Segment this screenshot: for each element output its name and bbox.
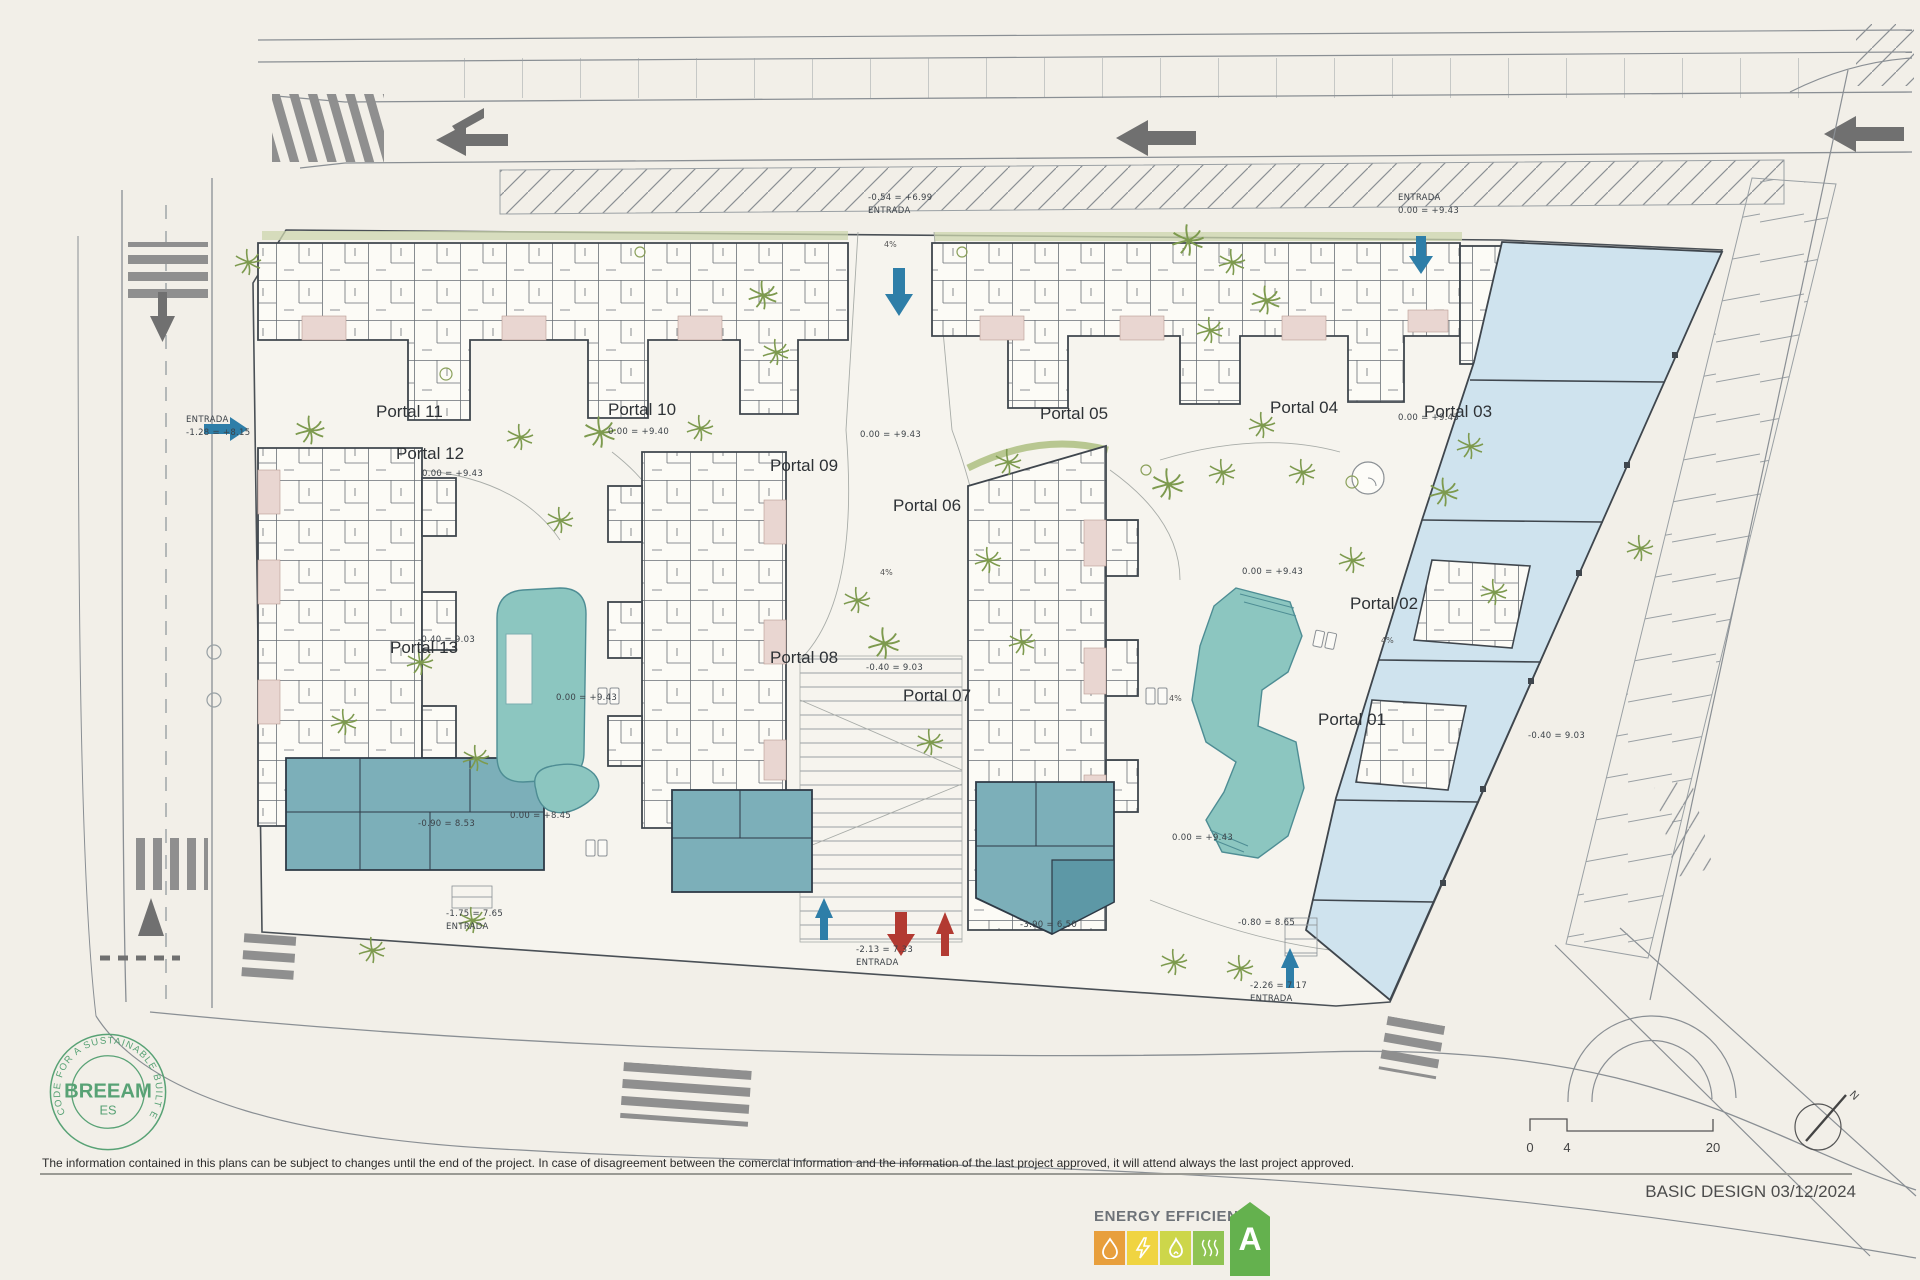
- north-arrow: N: [1795, 1089, 1861, 1150]
- crosswalk-top-left: [272, 94, 384, 162]
- flame-icon: [1160, 1231, 1191, 1265]
- portal-07-label: Portal 07: [903, 686, 971, 706]
- portal-04-label: Portal 04: [1270, 398, 1338, 418]
- site-plan-drawing: 0 4 20 N: [0, 0, 1920, 1280]
- slope-label: 4%: [880, 568, 893, 577]
- entrance-annotation: ENTRADA0.00 = +9.43: [1398, 192, 1459, 218]
- entrance-annotation: ENTRADA-1.28 = +8.15: [186, 414, 250, 440]
- portal-12-label: Portal 12: [396, 444, 464, 464]
- portal-11-label: Portal 11: [376, 402, 443, 422]
- parking-strip-hatched: [500, 160, 1784, 214]
- level-annotation: -3.90 = 6.50: [1020, 919, 1077, 932]
- level-annotation: 0.00 = +9.40: [608, 426, 669, 439]
- energy-efficiency-badge: ENERGY EFFICIENCY A: [1094, 1208, 1274, 1278]
- corner-hatch: [1856, 24, 1914, 86]
- breeam-region: ES: [99, 1102, 116, 1117]
- north-label: N: [1847, 1089, 1861, 1103]
- scale-bar: 0 4 20: [1526, 1119, 1720, 1155]
- lightning-icon: [1127, 1231, 1158, 1265]
- level-annotation: -0.40 = 9.03: [418, 634, 475, 647]
- breeam-badge: CODE FOR A SUSTAINABLE BUILT ENVIRONMENT…: [28, 1012, 188, 1172]
- disclaimer-text: The information contained in this plans …: [42, 1156, 1542, 1170]
- street-parking-ticks: [430, 58, 1830, 98]
- level-annotation: 0.00 = +8.45: [510, 810, 571, 823]
- footer-divider: [40, 1173, 1852, 1175]
- entrance-annotation: -0.54 = +6.99ENTRADA: [868, 192, 932, 218]
- lane-arrow-left: [1824, 116, 1904, 152]
- scale-label-20: 20: [1706, 1140, 1720, 1155]
- level-annotation: 0.00 = +9.43: [556, 692, 617, 705]
- level-annotation: 0.00 = +9.43: [1242, 566, 1303, 579]
- energy-rating-arrow: A: [1230, 1202, 1270, 1276]
- design-stamp: BASIC DESIGN 03/12/2024: [1520, 1182, 1856, 1202]
- pool-platform: [506, 634, 532, 704]
- breeam-ring-text: CODE FOR A SUSTAINABLE BUILT ENVIRONMENT: [28, 1012, 164, 1121]
- scale-label-4: 4: [1563, 1140, 1570, 1155]
- lane-fork-arrow: [436, 108, 508, 156]
- lane-arrow-up: [138, 898, 164, 936]
- level-annotation: 0.00 = +9.43: [1172, 832, 1233, 845]
- level-annotation: -0.90 = 8.53: [418, 818, 475, 831]
- left-road: [78, 178, 212, 1016]
- heat-waves-icon: [1193, 1231, 1224, 1265]
- level-annotation: -0.80 = 8.65: [1238, 917, 1295, 930]
- level-annotation: -0.40 = 9.03: [1528, 730, 1585, 743]
- portal-02-label: Portal 02: [1350, 594, 1418, 614]
- portal-09-label: Portal 09: [770, 456, 838, 476]
- svg-text:CODE FOR A SUSTAINABLE BUILT E: CODE FOR A SUSTAINABLE BUILT ENVIRONMENT: [28, 1012, 164, 1121]
- lane-arrow-left: [1116, 120, 1196, 156]
- stairs: [452, 886, 492, 908]
- level-annotation: 0.00 = +9.43: [1398, 412, 1459, 425]
- scale-label-0: 0: [1526, 1140, 1533, 1155]
- portal-01-label: Portal 01: [1318, 710, 1386, 730]
- portal-06-label: Portal 06: [893, 496, 961, 516]
- crosswalk-bottom-right: [1379, 1016, 1445, 1079]
- portal02-core: [1414, 560, 1530, 648]
- energy-rating-letter: A: [1238, 1221, 1261, 1258]
- slope-label: 4%: [1381, 636, 1394, 645]
- level-annotation: 0.00 = +9.43: [860, 429, 921, 442]
- floor-plan-document: 0 4 20 N Portal 01 Portal 02 Portal 03 P…: [0, 0, 1920, 1280]
- slope-label: 4%: [1169, 694, 1182, 703]
- entrance-annotation: -1.75 = 7.65ENTRADA: [446, 908, 503, 934]
- top-road: [258, 24, 1914, 214]
- curb-arc: [1568, 1016, 1736, 1102]
- portal-10-label: Portal 10: [608, 400, 676, 420]
- portal-05-label: Portal 05: [1040, 404, 1108, 424]
- crosswalk-left-bottom: [128, 838, 208, 890]
- slope-label: 4%: [884, 240, 897, 249]
- level-annotation: 0.00 = +9.43: [422, 468, 483, 481]
- lane-arrow-down: [150, 292, 175, 342]
- water-drop-icon: [1094, 1231, 1125, 1265]
- breeam-name: BREEAM: [64, 1080, 152, 1102]
- portal-08-label: Portal 08: [770, 648, 838, 668]
- crosswalk-left-top: [128, 242, 208, 298]
- crosswalk-bottom-center: [620, 1062, 752, 1127]
- entrance-annotation: -2.13 = 7.33ENTRADA: [856, 944, 913, 970]
- entrance-annotation: -2.26 = 7.17ENTRADA: [1250, 980, 1307, 1006]
- hedge-strip: [262, 231, 848, 240]
- level-annotation: -0.40 = 9.03: [866, 662, 923, 675]
